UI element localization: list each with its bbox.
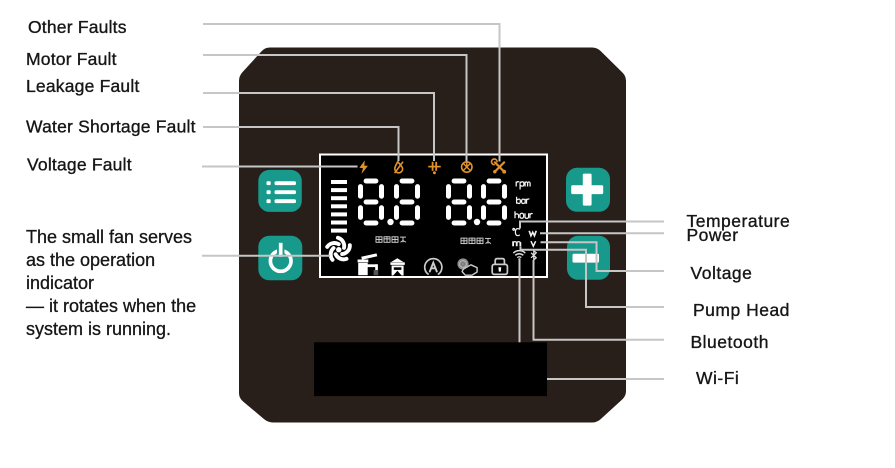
svg-text:Power: Power (687, 225, 739, 245)
svg-text:Pump Head: Pump Head (693, 300, 790, 320)
svg-text:system is running.: system is running. (26, 319, 171, 339)
svg-text:Leakage Fault: Leakage Fault (26, 76, 140, 96)
svg-text:— it rotates when the: — it rotates when the (26, 296, 196, 316)
svg-text:Motor Fault: Motor Fault (26, 49, 117, 69)
svg-text:Voltage: Voltage (691, 263, 753, 283)
svg-text:Other Faults: Other Faults (28, 17, 127, 37)
svg-text:Voltage Fault: Voltage Fault (27, 155, 132, 175)
svg-text:Bluetooth: Bluetooth (691, 332, 769, 352)
svg-text:Wi-Fi: Wi-Fi (696, 368, 739, 388)
svg-text:The small fan serves: The small fan serves (26, 227, 192, 247)
svg-text:Water Shortage Fault: Water Shortage Fault (26, 117, 196, 137)
svg-text:as the operation: as the operation (26, 250, 155, 270)
svg-text:indicator: indicator (26, 273, 94, 293)
